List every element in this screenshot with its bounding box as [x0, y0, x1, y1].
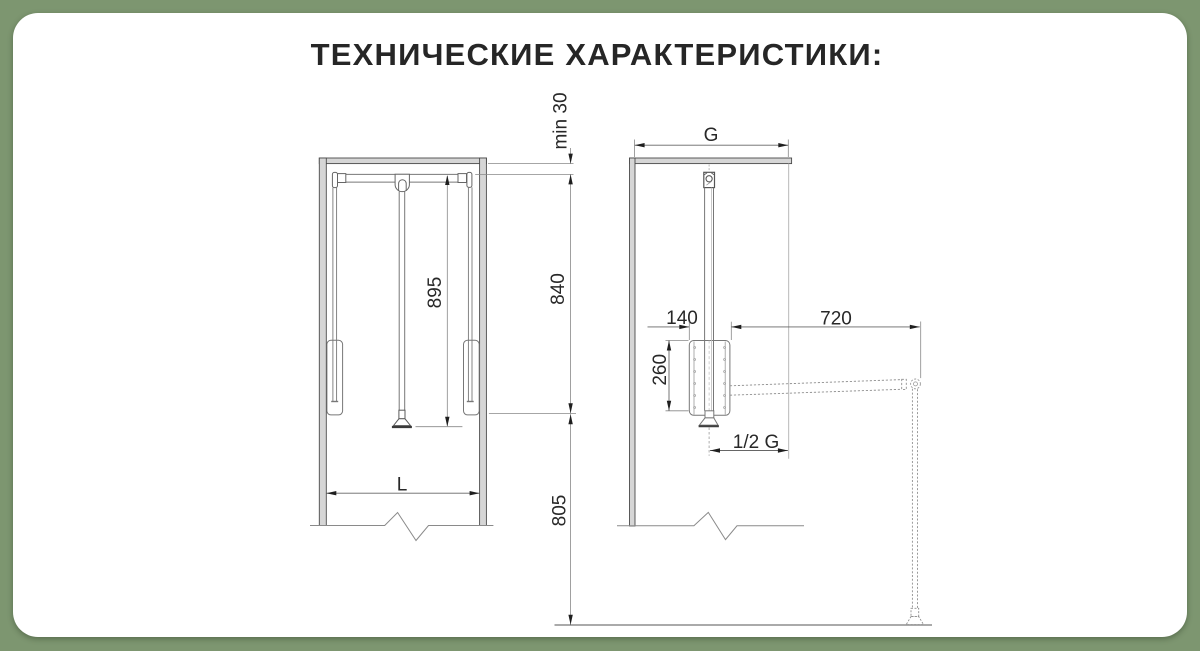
svg-text:140: 140	[666, 308, 698, 329]
svg-text:L: L	[397, 474, 408, 495]
svg-text:805: 805	[550, 495, 571, 527]
svg-text:720: 720	[820, 308, 852, 329]
svg-text:840: 840	[548, 273, 569, 305]
svg-text:G: G	[704, 125, 719, 146]
svg-text:895: 895	[425, 277, 446, 309]
svg-text:260: 260	[650, 354, 671, 386]
svg-text:min 30: min 30	[551, 92, 572, 149]
svg-text:1/2 G: 1/2 G	[733, 432, 779, 453]
